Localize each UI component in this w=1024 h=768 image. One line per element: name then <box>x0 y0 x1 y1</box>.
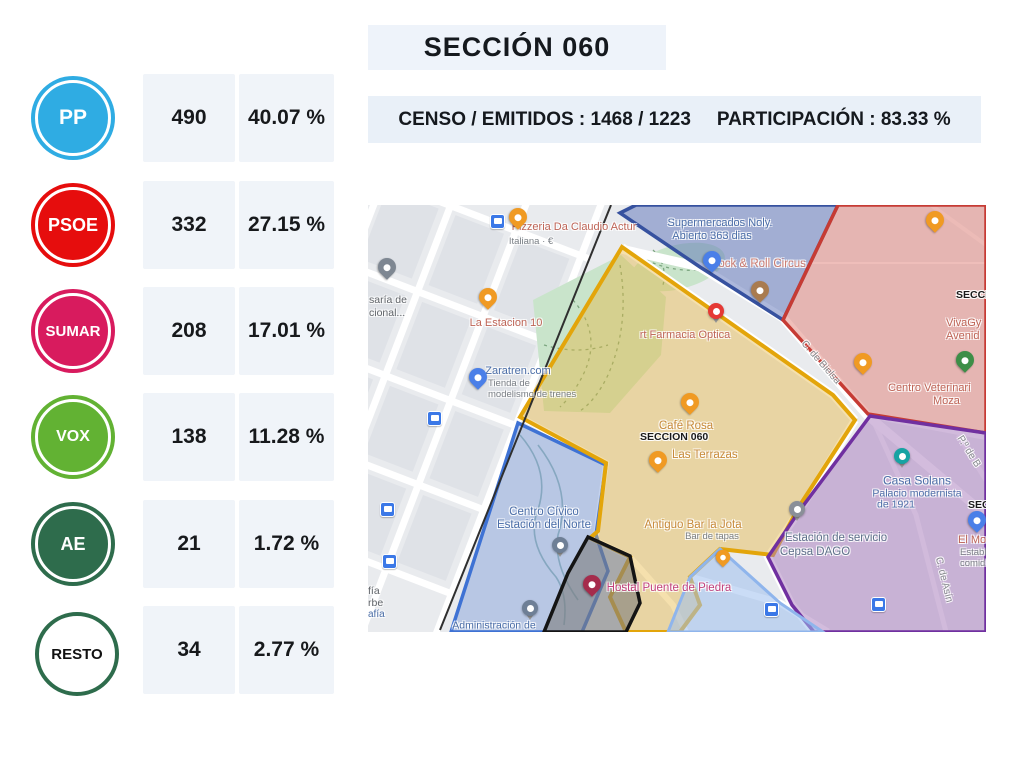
poi-label: Avenid <box>946 331 979 343</box>
section-label: SEC <box>968 500 986 511</box>
party-badge-vox: VOX <box>31 395 115 479</box>
poi-sublabel: Abierto 363 dias <box>672 231 752 243</box>
percent-value: 40.07 % <box>248 106 325 130</box>
bus-stop-icon[interactable] <box>427 411 442 426</box>
percent-value: 2.77 % <box>254 638 319 662</box>
poi-label: Estación de servicio <box>785 532 887 544</box>
poi-sublabel: comid <box>960 559 985 569</box>
section-label: SECCIO <box>956 290 986 301</box>
result-row-sumar: SUMAR 208 17.01 % <box>0 287 345 375</box>
party-label: AE <box>60 534 85 555</box>
percent-value: 11.28 % <box>249 425 325 449</box>
poi-sublabel: modelismo de trenes <box>488 390 576 400</box>
percent-cell: 40.07 % <box>239 74 334 162</box>
votes-value: 21 <box>177 532 200 556</box>
party-badge-pp: PP <box>31 76 115 160</box>
bus-stop-icon[interactable] <box>380 502 395 517</box>
percent-value: 17.01 % <box>248 319 325 343</box>
poi-label: Antiguo Bar la Jota <box>644 519 741 531</box>
party-badge-resto: RESTO <box>35 612 119 696</box>
poi-label: afía <box>368 610 385 621</box>
page-title: SECCIÓN 060 <box>368 25 666 70</box>
poi-label: rbe <box>368 598 383 609</box>
poi-label: Zaratren.com <box>485 366 550 378</box>
party-badge-psoe: PSOE <box>31 183 115 267</box>
poi-label: fía <box>368 586 380 597</box>
section-label: SECCION 060 <box>640 432 708 443</box>
poi-label: Hostal Puente de Piedra <box>607 582 732 594</box>
poi-label: VivaGy <box>946 318 981 330</box>
poi-label: Supermercados Noly. <box>668 218 773 230</box>
poi-label: Rock & Roll Circus <box>710 258 806 270</box>
result-row-pp: PP 490 40.07 % <box>0 74 345 162</box>
bus-stop-icon[interactable] <box>382 554 397 569</box>
bus-stop-icon[interactable] <box>871 597 886 612</box>
percent-cell: 17.01 % <box>239 287 334 375</box>
party-label: SUMAR <box>46 323 101 340</box>
party-label: PSOE <box>48 215 98 236</box>
poi-label: El Mo <box>958 535 986 547</box>
votes-value: 34 <box>177 638 200 662</box>
votes-cell: 138 <box>143 393 235 481</box>
poi-label: saría de <box>369 295 407 306</box>
votes-cell: 490 <box>143 74 235 162</box>
poi-label: cional... <box>369 308 405 319</box>
poi-sublabel: Cepsa DAGO <box>780 546 850 558</box>
poi-sublabel: Italiana · € <box>509 237 553 247</box>
percent-cell: 11.28 % <box>239 393 334 481</box>
poi-label: Pizzeria Da Claudio Actur <box>512 222 637 234</box>
section-title-text: SECCIÓN 060 <box>424 32 611 63</box>
votes-cell: 34 <box>143 606 235 694</box>
party-badge-sumar: SUMAR <box>31 289 115 373</box>
party-badge-ae: AE <box>31 502 115 586</box>
result-row-resto: RESTO 34 2.77 % <box>0 606 345 694</box>
map-canvas <box>368 205 986 632</box>
poi-sublabel: de 1921 <box>877 499 915 510</box>
bus-stop-icon[interactable] <box>490 214 505 229</box>
poi-sublabel: Tienda de <box>488 379 530 389</box>
percent-cell: 2.77 % <box>239 606 334 694</box>
party-label: RESTO <box>51 646 102 663</box>
bus-stop-icon[interactable] <box>764 602 779 617</box>
result-row-ae: AE 21 1.72 % <box>0 500 345 588</box>
poi-sublabel: Establ <box>960 548 986 558</box>
census-participation-bar: CENSO / EMITIDOS : 1468 / 1223 PARTICIPA… <box>368 96 981 143</box>
percent-cell: 27.15 % <box>239 181 334 269</box>
votes-value: 138 <box>171 425 206 449</box>
votes-value: 208 <box>171 319 206 343</box>
census-emitted-text: CENSO / EMITIDOS : 1468 / 1223 <box>398 109 691 131</box>
poi-label: Estación del Norte <box>497 519 591 531</box>
poi-label: Las Terrazas <box>672 449 738 461</box>
percent-cell: 1.72 % <box>239 500 334 588</box>
percent-value: 27.15 % <box>248 213 325 237</box>
poi-label: Centro Cívico <box>509 506 579 518</box>
votes-cell: 21 <box>143 500 235 588</box>
poi-label: Centro Veterinari <box>888 383 971 395</box>
poi-label: La Estacion 10 <box>470 318 543 330</box>
poi-label: Administración de <box>452 620 535 631</box>
votes-cell: 332 <box>143 181 235 269</box>
votes-value: 332 <box>171 213 206 237</box>
result-row-psoe: PSOE 332 27.15 % <box>0 181 345 269</box>
result-row-vox: VOX 138 11.28 % <box>0 393 345 481</box>
party-label: VOX <box>56 428 90 446</box>
votes-value: 490 <box>171 106 206 130</box>
percent-value: 1.72 % <box>254 532 319 556</box>
poi-sublabel: Bar de tapas <box>685 532 739 542</box>
poi-label: Moza <box>933 396 960 408</box>
party-label: PP <box>59 106 87 130</box>
map-view[interactable]: Pizzeria Da Claudio Actur Italiana · € s… <box>368 205 986 632</box>
election-section-dashboard: SECCIÓN 060 CENSO / EMITIDOS : 1468 / 12… <box>0 0 1024 768</box>
participation-text: PARTICIPACIÓN : 83.33 % <box>717 109 951 131</box>
poi-label: Casa Solans <box>883 475 951 488</box>
votes-cell: 208 <box>143 287 235 375</box>
poi-label: rt Farmacia Optica <box>640 330 730 342</box>
